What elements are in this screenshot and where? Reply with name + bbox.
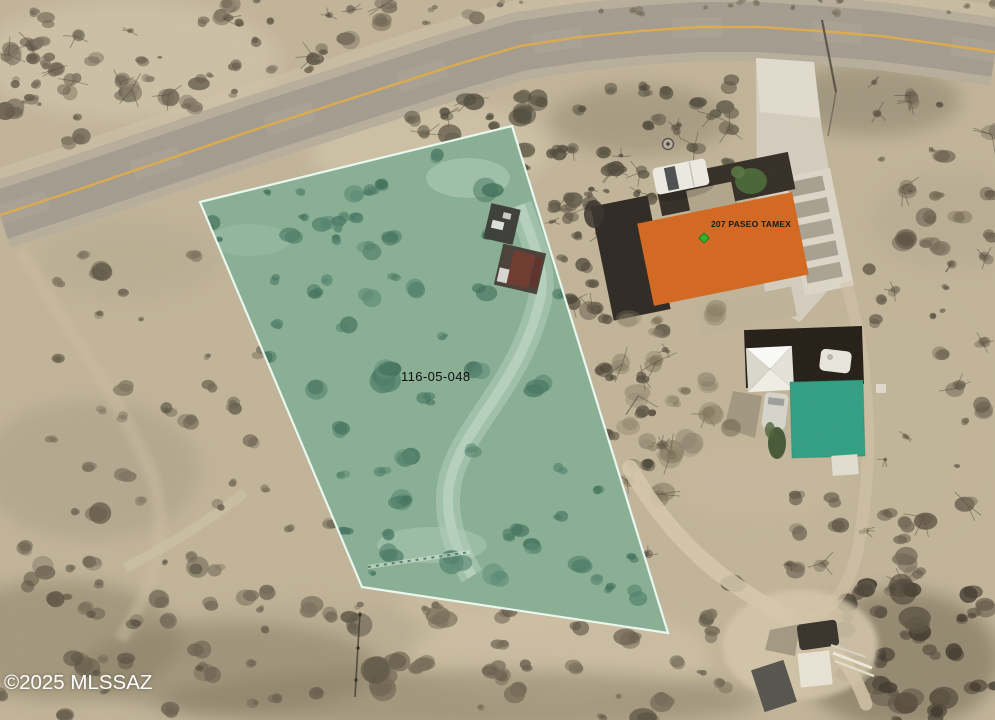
image-grain (0, 0, 995, 720)
aerial-map-view: 116-05-048 207 PASEO TAMEX ©2025 MLSSAZ (0, 0, 995, 720)
aerial-imagery (0, 0, 995, 720)
